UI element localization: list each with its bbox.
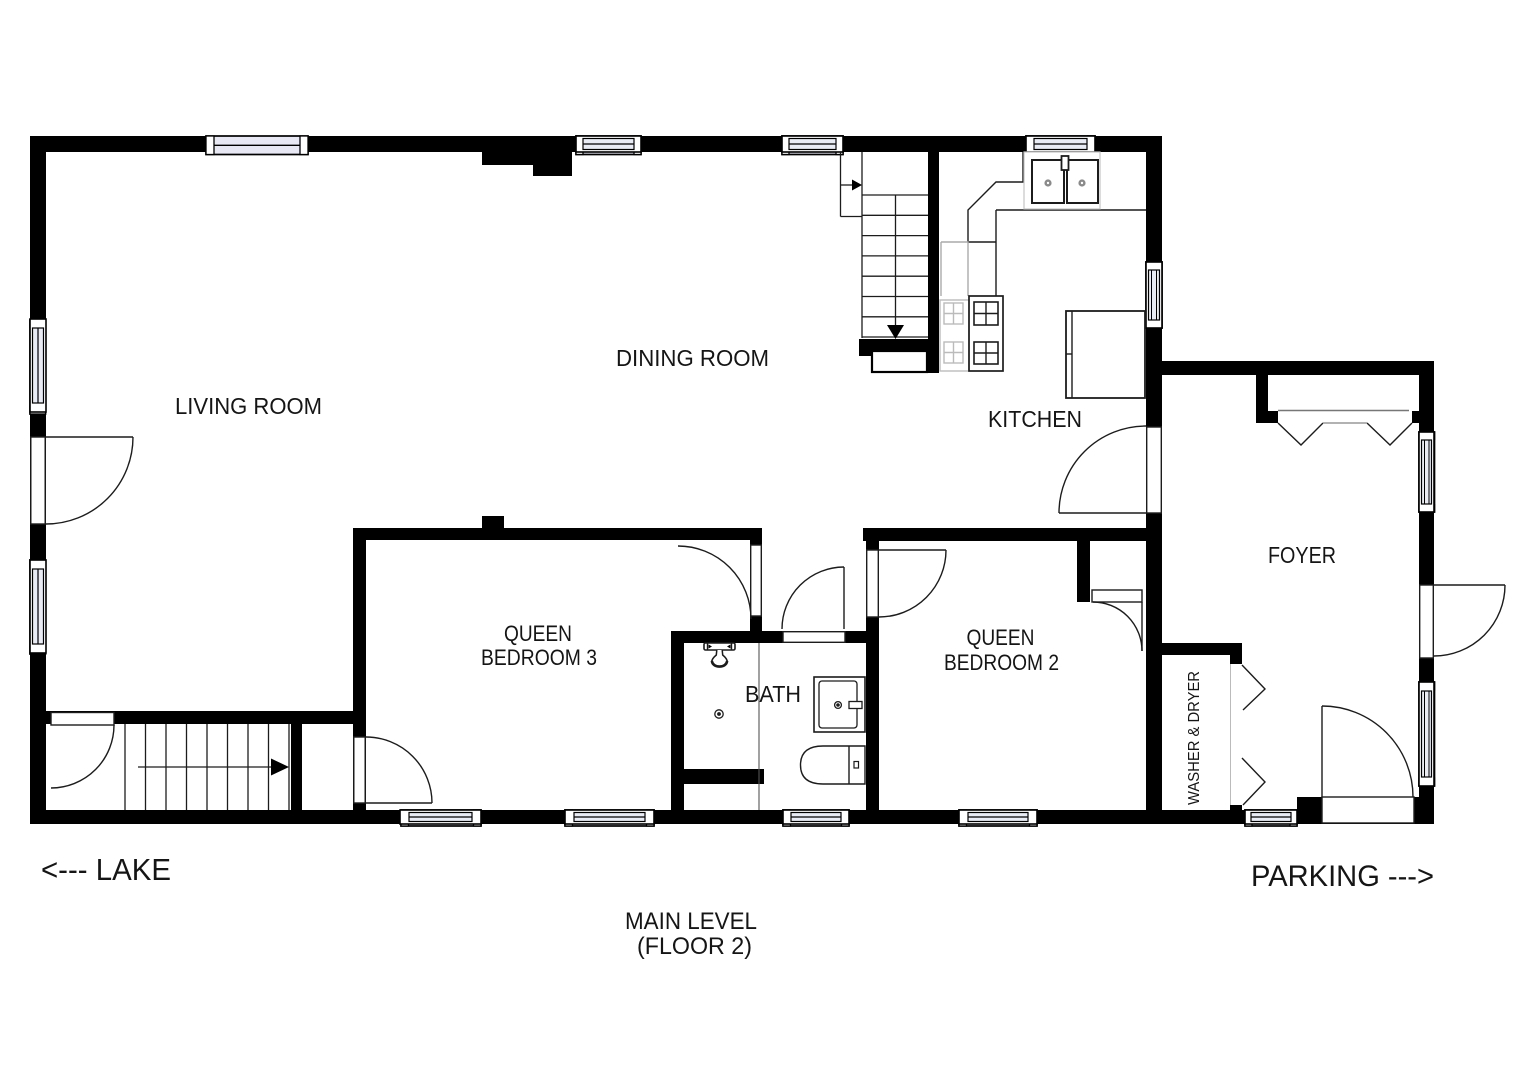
svg-text:KITCHEN: KITCHEN xyxy=(988,406,1082,432)
svg-text:QUEEN: QUEEN xyxy=(504,621,572,646)
svg-text:QUEEN: QUEEN xyxy=(967,625,1035,650)
svg-text:(FLOOR 2): (FLOOR 2) xyxy=(637,933,752,960)
svg-text:BATH: BATH xyxy=(745,681,801,707)
svg-text:<--- LAKE: <--- LAKE xyxy=(41,852,171,887)
svg-text:DINING ROOM: DINING ROOM xyxy=(616,345,769,371)
svg-text:MAIN LEVEL: MAIN LEVEL xyxy=(625,908,757,935)
svg-text:WASHER & DRYER: WASHER & DRYER xyxy=(1186,671,1203,805)
svg-text:BEDROOM 3: BEDROOM 3 xyxy=(481,645,597,670)
svg-text:BEDROOM 2: BEDROOM 2 xyxy=(944,650,1059,675)
svg-text:PARKING --->: PARKING ---> xyxy=(1251,860,1434,893)
svg-text:LIVING ROOM: LIVING ROOM xyxy=(175,393,322,419)
svg-text:FOYER: FOYER xyxy=(1268,542,1336,568)
